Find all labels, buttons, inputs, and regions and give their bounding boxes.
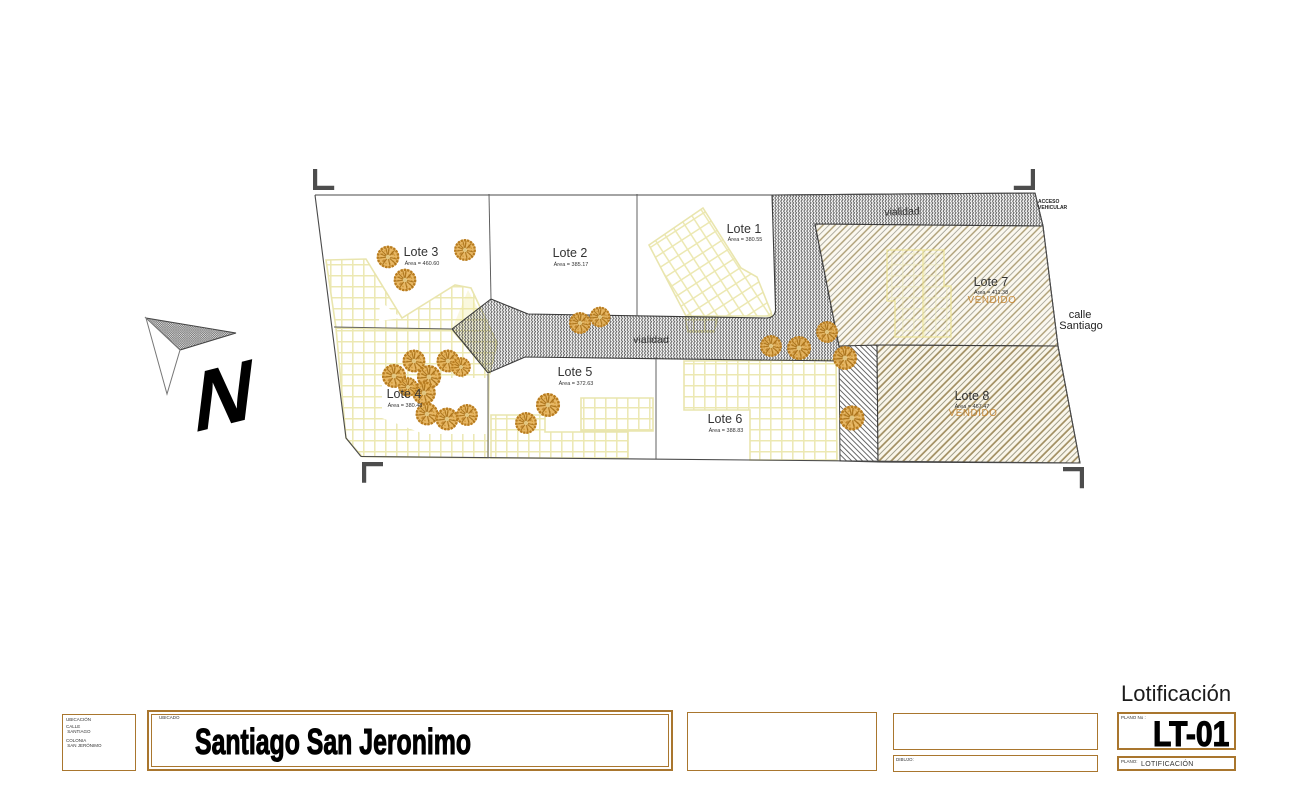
- svg-text:Lote 1: Lote 1: [727, 222, 762, 236]
- svg-text:Lote 6: Lote 6: [708, 412, 743, 426]
- svg-text:Santiago: Santiago: [1059, 320, 1102, 332]
- svg-text:Área = 380.48: Área = 380.48: [388, 402, 423, 409]
- svg-text:Área = 388.83: Área = 388.83: [709, 427, 744, 434]
- svg-text:vialidad: vialidad: [884, 205, 920, 218]
- svg-text:Lote 2: Lote 2: [553, 246, 588, 260]
- svg-text:vialidad: vialidad: [633, 334, 669, 346]
- svg-text:VENDIDO: VENDIDO: [968, 295, 1017, 306]
- svg-text:N: N: [190, 339, 260, 452]
- svg-text:VENDIDO: VENDIDO: [949, 408, 998, 419]
- svg-text:Lote 4: Lote 4: [387, 387, 422, 401]
- svg-text:VEHICULAR: VEHICULAR: [1038, 205, 1068, 211]
- svg-text:Lote 7: Lote 7: [974, 275, 1009, 289]
- svg-text:Lote 8: Lote 8: [955, 389, 990, 403]
- svg-text:Lote 3: Lote 3: [404, 245, 439, 259]
- svg-text:Área = 385.17: Área = 385.17: [554, 261, 589, 268]
- svg-text:Área = 372.63: Área = 372.63: [559, 380, 594, 387]
- svg-text:Área = 380.55: Área = 380.55: [728, 236, 763, 243]
- svg-text:Área = 460.60: Área = 460.60: [405, 260, 440, 267]
- svg-text:Lote 5: Lote 5: [558, 365, 593, 379]
